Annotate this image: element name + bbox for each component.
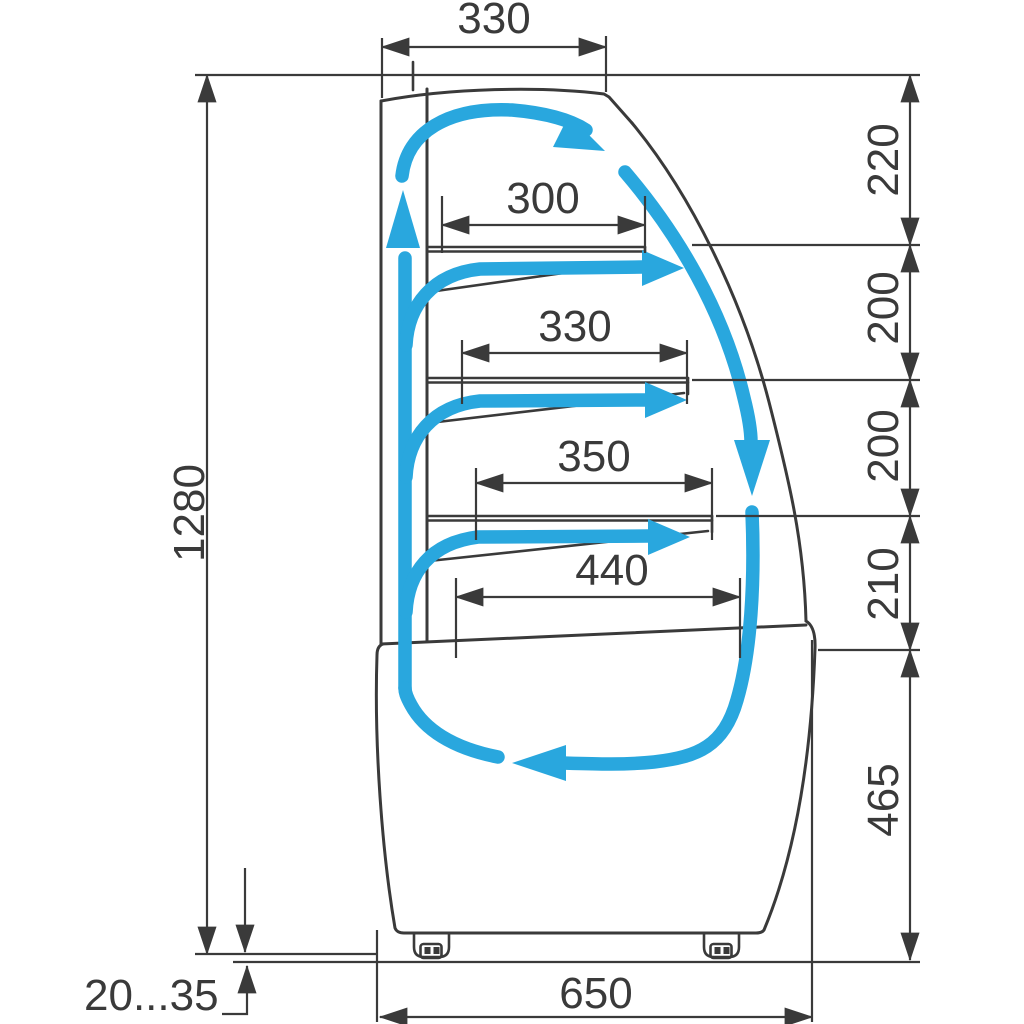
dim-base-depth: 650 bbox=[377, 640, 812, 1022]
airflow-down-arrow-icon bbox=[734, 440, 770, 496]
foot-left bbox=[414, 933, 449, 958]
dim-shelf-depth-3: 350 bbox=[476, 432, 712, 540]
dim-total-height: 1280 bbox=[165, 75, 214, 954]
dim-top-width-label: 330 bbox=[457, 0, 530, 43]
airflow-left-arrow-icon bbox=[512, 745, 566, 781]
dim-total-height-label: 1280 bbox=[165, 464, 214, 562]
dim-level-2-label: 200 bbox=[859, 271, 908, 344]
airflow-shelf-3-arrow-icon bbox=[648, 519, 690, 555]
dim-level-3-label: 200 bbox=[859, 409, 908, 482]
airflow-up-arrow-icon bbox=[386, 190, 420, 248]
dim-shelf-depth-1-label: 300 bbox=[506, 174, 579, 223]
return-to-duct-flow bbox=[405, 688, 498, 757]
dim-level-4-label: 210 bbox=[859, 547, 908, 620]
dim-level-1-label: 220 bbox=[859, 123, 908, 196]
dim-top-width: 330 bbox=[382, 0, 606, 98]
airflow-shelf-2-arrow-icon bbox=[645, 382, 687, 418]
dim-base-height-label: 465 bbox=[859, 763, 908, 836]
dim-shelf-depth-4-label: 440 bbox=[575, 546, 648, 595]
refrigerated-display-case-section-drawing: 330 1280 300 330 350 bbox=[0, 0, 1024, 1024]
dim-base-depth-label: 650 bbox=[559, 969, 632, 1018]
foot-right bbox=[704, 933, 739, 958]
dim-shelf-depth-2-label: 330 bbox=[538, 302, 611, 351]
dim-shelf-depth-4: 440 bbox=[456, 546, 740, 658]
dim-level-stack: 220 200 200 210 465 bbox=[692, 75, 920, 960]
airflow-diagram-canvas: 330 1280 300 330 350 bbox=[0, 0, 1024, 1024]
dim-shelf-depth-3-label: 350 bbox=[557, 432, 630, 481]
dim-shelf-depth-1: 300 bbox=[442, 174, 645, 253]
dim-floor-clearance: 20...35 bbox=[84, 868, 247, 1020]
dim-floor-clearance-label: 20...35 bbox=[84, 971, 219, 1020]
